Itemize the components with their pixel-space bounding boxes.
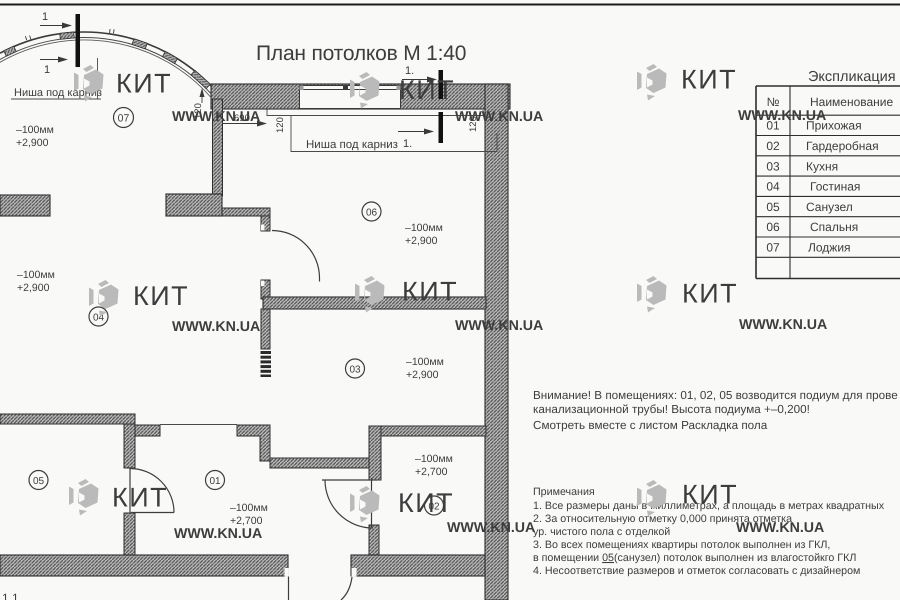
svg-text:–100мм: –100мм	[17, 269, 55, 281]
svg-text:WWW.KN.UA: WWW.KN.UA	[174, 526, 262, 542]
svg-text:Лоджия: Лоджия	[808, 241, 851, 255]
svg-text:Смотреть вместе с листом Раскл: Смотреть вместе с листом Раскладка пола	[533, 419, 768, 432]
svg-text:КИТ: КИТ	[402, 277, 458, 307]
svg-text:КИТ: КИТ	[681, 65, 737, 95]
svg-text:Экспликация: Экспликация	[808, 69, 896, 85]
svg-text:–100мм: –100мм	[16, 124, 54, 136]
svg-text:Примечания: Примечания	[533, 486, 595, 498]
svg-text:07: 07	[118, 113, 130, 125]
svg-text:–100мм: –100мм	[405, 222, 443, 234]
svg-text:Гардеробная: Гардеробная	[806, 139, 879, 153]
svg-text:+2,900: +2,900	[17, 282, 50, 294]
svg-text:+2,700: +2,700	[415, 466, 448, 478]
svg-text:05: 05	[766, 200, 780, 214]
svg-text:Санузел: Санузел	[806, 200, 853, 214]
svg-text:WWW.KN.UA: WWW.KN.UA	[447, 520, 535, 536]
svg-text:WWW.KN.UA: WWW.KN.UA	[172, 109, 260, 125]
svg-text:+2,900: +2,900	[406, 369, 439, 381]
svg-text:КИТ: КИТ	[116, 69, 172, 99]
svg-text:1: 1	[44, 64, 50, 76]
svg-text:КИТ: КИТ	[112, 483, 168, 513]
svg-text:–100мм: –100мм	[230, 502, 268, 514]
svg-text:Гостиная: Гостиная	[810, 180, 860, 194]
svg-text:План потолков М 1:40: План потолков М 1:40	[256, 42, 466, 65]
svg-text:WWW.KN.UA: WWW.KN.UA	[455, 109, 543, 125]
svg-text:06: 06	[766, 220, 780, 234]
svg-text:КИТ: КИТ	[682, 279, 738, 309]
svg-text:–100мм: –100мм	[406, 356, 444, 368]
svg-text:Ниша под карниз: Ниша под карниз	[306, 139, 398, 151]
svg-text:1 1: 1 1	[2, 591, 19, 600]
svg-text:01: 01	[209, 476, 221, 487]
svg-text:06: 06	[366, 208, 378, 219]
svg-text:№: №	[767, 95, 780, 109]
svg-text:WWW.KN.UA: WWW.KN.UA	[739, 317, 827, 333]
svg-text:4. Несоответствие размеров и о: 4. Несоответствие размеров и отметок сог…	[533, 565, 860, 577]
svg-text:WWW.KN.UA: WWW.KN.UA	[738, 108, 826, 124]
svg-text:КИТ: КИТ	[133, 281, 189, 311]
svg-text:07: 07	[766, 241, 780, 255]
svg-text:04: 04	[766, 180, 780, 194]
svg-text:КИТ: КИТ	[398, 488, 454, 518]
svg-text:1.: 1.	[403, 138, 412, 150]
svg-text:WWW.KN.UA: WWW.KN.UA	[455, 318, 543, 334]
svg-text:КИТ: КИТ	[399, 75, 455, 105]
svg-text:05: 05	[33, 476, 45, 487]
svg-text:3. Во всех помещениях квартиры: 3. Во всех помещениях квартиры потолок в…	[533, 539, 830, 551]
svg-text:канализационной трубы! Высота: канализационной трубы! Высота подиума +–…	[533, 403, 810, 416]
svg-text:Внимание! В помещениях: 01, 02: Внимание! В помещениях: 01, 02, 05 возво…	[533, 389, 898, 402]
svg-text:03: 03	[349, 365, 361, 376]
svg-text:в помещении 05(санузел) потоло: в помещении 05(санузел) потолок выполнен…	[533, 552, 856, 564]
svg-text:120: 120	[275, 117, 286, 133]
svg-text:Кухня: Кухня	[806, 159, 838, 173]
svg-text:WWW.KN.UA: WWW.KN.UA	[736, 520, 824, 536]
svg-text:ур. чистого пола с отделкой: ур. чистого пола с отделкой	[533, 526, 670, 538]
svg-text:–100мм: –100мм	[415, 453, 453, 465]
svg-text:КИТ: КИТ	[682, 480, 738, 510]
svg-text:+2,900: +2,900	[405, 235, 438, 247]
svg-text:1: 1	[42, 11, 48, 23]
svg-text:Спальня: Спальня	[810, 220, 858, 234]
svg-text:WWW.KN.UA: WWW.KN.UA	[172, 319, 260, 335]
svg-text:Наименование: Наименование	[810, 95, 894, 109]
svg-text:02: 02	[766, 139, 780, 153]
svg-text:03: 03	[766, 159, 780, 173]
svg-text:+2,900: +2,900	[16, 137, 49, 149]
